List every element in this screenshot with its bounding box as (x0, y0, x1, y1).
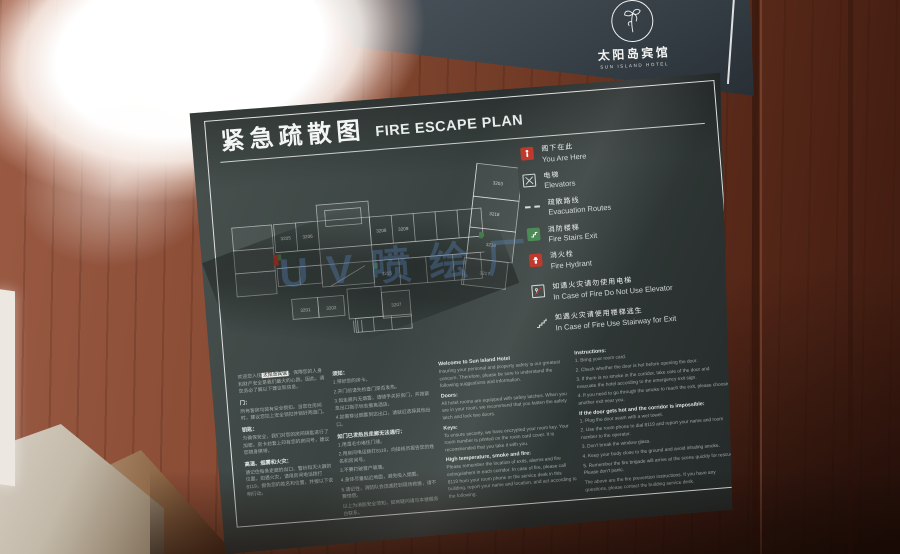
title-en: FIRE ESCAPE PLAN (375, 112, 524, 142)
cn-intro: 欢迎您入住太阳岛宾馆，保障您的人身和财产安全是我们最大的心愿。因此，请您务必了解… (237, 367, 325, 396)
fire-hydrant-icon (529, 254, 543, 268)
elevators-icon (522, 174, 536, 188)
logo-panel-border (727, 0, 735, 84)
stairway-exit-icon (534, 315, 548, 329)
hotel-logo: 太阳岛宾馆 SUN ISLAND HOTEL (576, 0, 689, 71)
room-number: 3202 (326, 305, 337, 311)
legend-item: 如遇火灾请使用楼梯逃生 In Case of Fire Use Stairway… (534, 299, 737, 334)
legend: 阁下在此 You Are Here 电梯 Elevators (520, 131, 737, 342)
room-number: 3215 (382, 271, 393, 277)
room-number: 3209 (398, 226, 409, 232)
you-are-here-icon (520, 147, 534, 161)
cn-intro-pre: 欢迎您入住 (237, 373, 261, 380)
legend-label-en: Elevators (544, 179, 576, 191)
evacuation-route-icon (525, 205, 540, 208)
room-number: 3207 (391, 302, 402, 308)
no-elevator-icon (531, 284, 545, 298)
cn-keys-text: 为确保安全，我们对您的房间钥匙进行了加密。房卡封套上印有您的房间号，建议您随身携… (242, 429, 330, 458)
legend-item: 如遇火灾请勿使用电梯 In Case of Fire Do Not Use El… (531, 268, 734, 303)
floor-plan-drawing: 3203 3218 3216 3217 3205 3206 3208 3209 … (225, 141, 532, 362)
title-zh: 紧急疏散图 (220, 119, 366, 155)
fire-stairs-icon (527, 227, 541, 241)
photo-fire-escape-plan-sign: 太阳岛宾馆 SUN ISLAND HOTEL UV喷绘厂 紧急疏散图 FIRE … (0, 0, 900, 554)
room-number: 3205 (280, 236, 291, 242)
lily-flower-icon (618, 6, 647, 35)
sign-inner-frame: 紧急疏散图 FIRE ESCAPE PLAN (204, 80, 747, 528)
bottom-shadow (150, 470, 900, 554)
room-number: 3201 (300, 307, 311, 313)
plan-and-legend-area: 3203 3218 3216 3217 3205 3206 3208 3209 … (220, 124, 721, 370)
you-are-here-marker (273, 255, 279, 266)
legend-label-en: Fire Hydrant (550, 258, 592, 271)
room-number: 3206 (302, 234, 313, 240)
room-number: 3208 (376, 228, 387, 234)
hotel-logo-circle (610, 0, 654, 43)
